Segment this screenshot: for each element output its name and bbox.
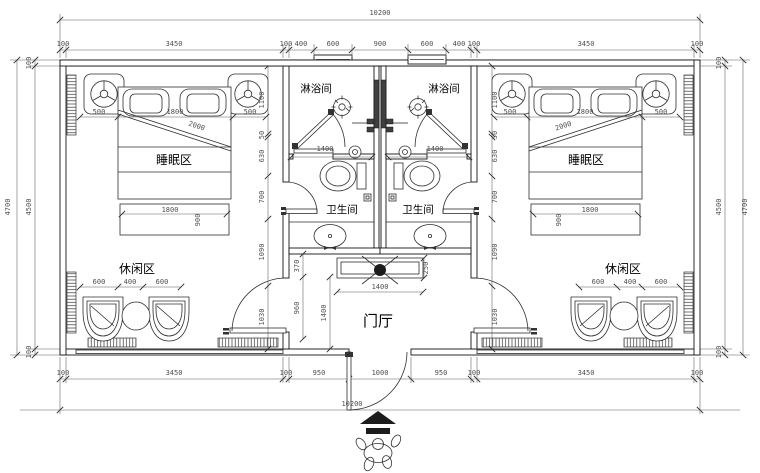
- svg-text:1030: 1030: [258, 309, 266, 326]
- svg-text:630: 630: [258, 150, 266, 163]
- svg-text:3450: 3450: [166, 369, 183, 377]
- room-label-wc-left: 卫生间: [326, 203, 358, 216]
- svg-text:100: 100: [468, 40, 481, 48]
- svg-text:500: 500: [244, 108, 257, 116]
- svg-text:700: 700: [491, 191, 499, 204]
- svg-text:600: 600: [156, 278, 169, 286]
- ceiling-light-icon: [374, 264, 386, 276]
- svg-text:1800: 1800: [577, 108, 594, 116]
- dim-right-chain: 100 4500 100 4700: [715, 57, 749, 359]
- svg-text:500: 500: [504, 108, 517, 116]
- room-label-sleep-right: 睡眠区: [568, 153, 604, 167]
- svg-text:1800: 1800: [582, 206, 599, 214]
- room-label-shower-right: 淋浴间: [428, 82, 460, 95]
- svg-text:1800: 1800: [162, 206, 179, 214]
- svg-text:1800: 1800: [167, 108, 184, 116]
- svg-text:600: 600: [93, 278, 106, 286]
- svg-text:370: 370: [293, 260, 301, 273]
- svg-text:1000: 1000: [372, 369, 389, 377]
- svg-text:50: 50: [258, 131, 266, 139]
- svg-text:1400: 1400: [320, 305, 328, 322]
- room-label-leisure-left: 休闲区: [119, 262, 155, 276]
- svg-text:500: 500: [655, 108, 668, 116]
- svg-text:100: 100: [57, 40, 70, 48]
- svg-text:400: 400: [295, 40, 308, 48]
- svg-text:1090: 1090: [491, 244, 499, 261]
- floor-plan: 10200 100 3450 100 400 600 900 600 400 1…: [0, 0, 760, 473]
- dim-bottom-chain: 100 3450 100 950 1000 950 100 3450 100: [57, 369, 704, 377]
- svg-text:400: 400: [124, 278, 137, 286]
- dim-bath-right: 1400: [427, 145, 444, 153]
- svg-text:630: 630: [491, 150, 499, 163]
- room-label-foyer: 门厅: [363, 312, 393, 330]
- svg-text:700: 700: [258, 191, 266, 204]
- svg-text:1100: 1100: [258, 92, 266, 109]
- svg-text:50: 50: [491, 131, 499, 139]
- room-label-wc-right: 卫生间: [402, 203, 434, 216]
- svg-text:100: 100: [691, 40, 704, 48]
- svg-text:250: 250: [422, 262, 430, 275]
- svg-text:100: 100: [280, 40, 293, 48]
- svg-text:100: 100: [25, 346, 33, 359]
- svg-text:900: 900: [194, 214, 202, 227]
- svg-text:100: 100: [57, 369, 70, 377]
- svg-text:100: 100: [25, 57, 33, 70]
- foyer-fixtures: [300, 251, 427, 410]
- dim-bath-left: 1400: [317, 145, 334, 153]
- entry-arrow-icon: [360, 411, 396, 434]
- room-label-shower-left: 淋浴间: [300, 82, 332, 95]
- svg-text:900: 900: [555, 214, 563, 227]
- room-label-sleep-left: 睡眠区: [156, 153, 192, 167]
- dim-bottom-total: 10200: [341, 400, 362, 408]
- person-figure-icon: [354, 433, 403, 472]
- svg-text:4500: 4500: [25, 199, 33, 216]
- svg-text:960: 960: [293, 302, 301, 315]
- room-label-leisure-right: 休闲区: [605, 262, 641, 276]
- svg-text:1090: 1090: [258, 244, 266, 261]
- svg-text:100: 100: [280, 369, 293, 377]
- svg-text:100: 100: [468, 369, 481, 377]
- svg-text:400: 400: [453, 40, 466, 48]
- dim-left-chain: 4700 100 4500 100: [4, 57, 33, 359]
- svg-text:400: 400: [624, 278, 637, 286]
- dim-top-total: 10200: [369, 9, 390, 17]
- svg-text:600: 600: [421, 40, 434, 48]
- svg-text:100: 100: [715, 57, 723, 70]
- svg-text:600: 600: [592, 278, 605, 286]
- svg-text:3450: 3450: [578, 40, 595, 48]
- svg-text:4700: 4700: [4, 199, 12, 216]
- svg-text:600: 600: [655, 278, 668, 286]
- svg-text:4500: 4500: [715, 199, 723, 216]
- svg-text:4700: 4700: [741, 199, 749, 216]
- svg-text:100: 100: [691, 369, 704, 377]
- svg-text:1030: 1030: [491, 309, 499, 326]
- svg-text:950: 950: [313, 369, 326, 377]
- svg-text:900: 900: [374, 40, 387, 48]
- svg-text:500: 500: [93, 108, 106, 116]
- svg-text:600: 600: [327, 40, 340, 48]
- svg-text:3450: 3450: [166, 40, 183, 48]
- svg-text:1400: 1400: [372, 283, 389, 291]
- svg-text:1100: 1100: [491, 92, 499, 109]
- dim-top-chain: 100 3450 100 400 600 900 600 400 100 345…: [57, 40, 704, 48]
- svg-text:950: 950: [435, 369, 448, 377]
- svg-text:100: 100: [715, 346, 723, 359]
- svg-text:3450: 3450: [578, 369, 595, 377]
